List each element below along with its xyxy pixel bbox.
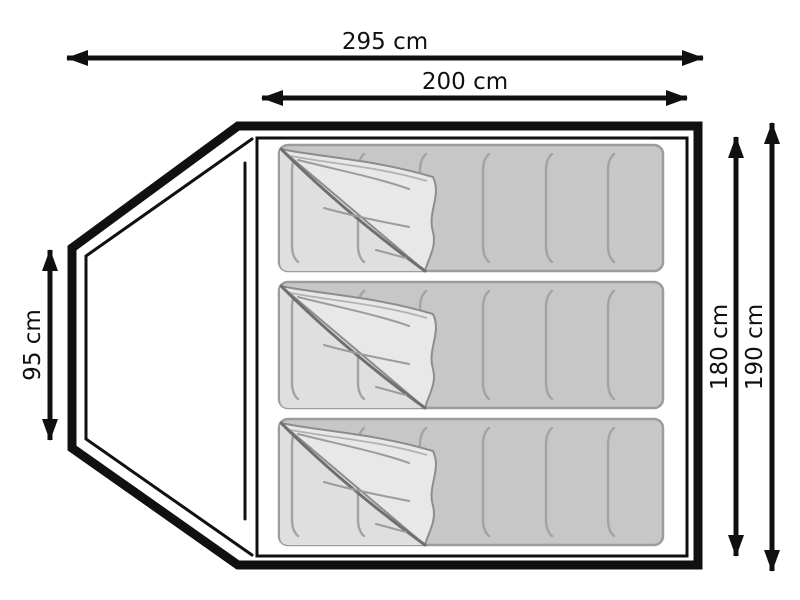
dim-label-total-width: 295 cm — [342, 29, 428, 55]
dim-label-outer-length: 190 cm — [742, 304, 768, 390]
dim-label-inner-length: 180 cm — [707, 304, 733, 390]
tent-top-view-svg: 295 cm 200 cm 95 cm 180 cm 190 cm — [0, 0, 800, 600]
dim-label-inner-width: 200 cm — [422, 69, 508, 95]
tent-floorplan-diagram: 295 cm 200 cm 95 cm 180 cm 190 cm — [0, 0, 800, 600]
dim-label-vestibule-side: 95 cm — [20, 309, 46, 381]
sleeping-bag-1 — [279, 145, 663, 271]
sleeping-bag-3 — [279, 419, 663, 545]
sleeping-bag-2 — [279, 282, 663, 408]
